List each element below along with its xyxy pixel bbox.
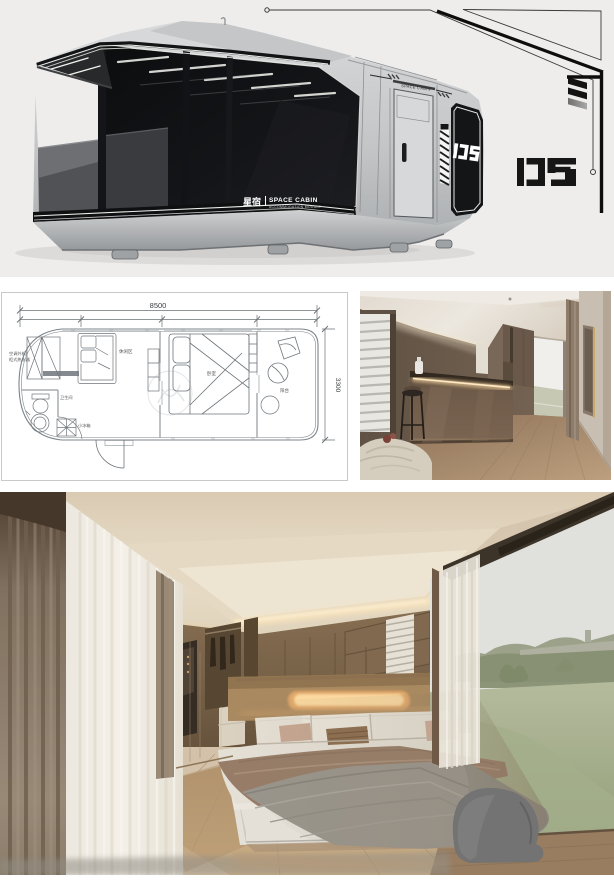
svg-text:小冰箱: 小冰箱 xyxy=(78,422,91,429)
svg-text:SPACE CABIN: SPACE CABIN xyxy=(269,197,318,204)
svg-text:阳台: 阳台 xyxy=(280,387,289,394)
svg-text:ACCOMMODATION MODULE: ACCOMMODATION MODULE xyxy=(269,205,322,209)
svg-text:空调外机/: 空调外机/ xyxy=(9,350,28,357)
svg-text:卧室: 卧室 xyxy=(207,370,216,377)
svg-text:柜式热水器: 柜式热水器 xyxy=(9,356,31,363)
svg-text:卫生间: 卫生间 xyxy=(60,394,73,401)
svg-text:休闲区: 休闲区 xyxy=(119,348,133,355)
svg-text:8500: 8500 xyxy=(150,301,167,310)
svg-text:星宿: 星宿 xyxy=(243,196,261,207)
svg-text:3300: 3300 xyxy=(334,378,341,393)
